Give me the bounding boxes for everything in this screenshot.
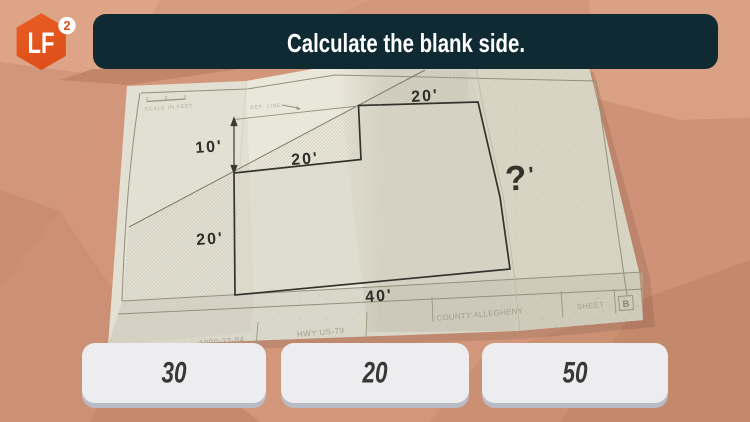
svg-text:B: B — [622, 299, 630, 311]
svg-text:40': 40' — [365, 287, 394, 306]
svg-text:20': 20' — [196, 230, 225, 249]
svg-text:LF: LF — [28, 27, 55, 60]
svg-text:Calculate the blank side.: Calculate the blank side. — [287, 28, 525, 58]
svg-text:50: 50 — [563, 357, 588, 390]
svg-text:30: 30 — [162, 357, 187, 390]
svg-text:2: 2 — [63, 18, 70, 33]
svg-text:20': 20' — [411, 87, 440, 106]
svg-text:?: ? — [504, 158, 528, 198]
svg-text:20': 20' — [291, 150, 320, 169]
svg-text:20: 20 — [362, 357, 388, 390]
svg-text:10': 10' — [195, 138, 224, 157]
